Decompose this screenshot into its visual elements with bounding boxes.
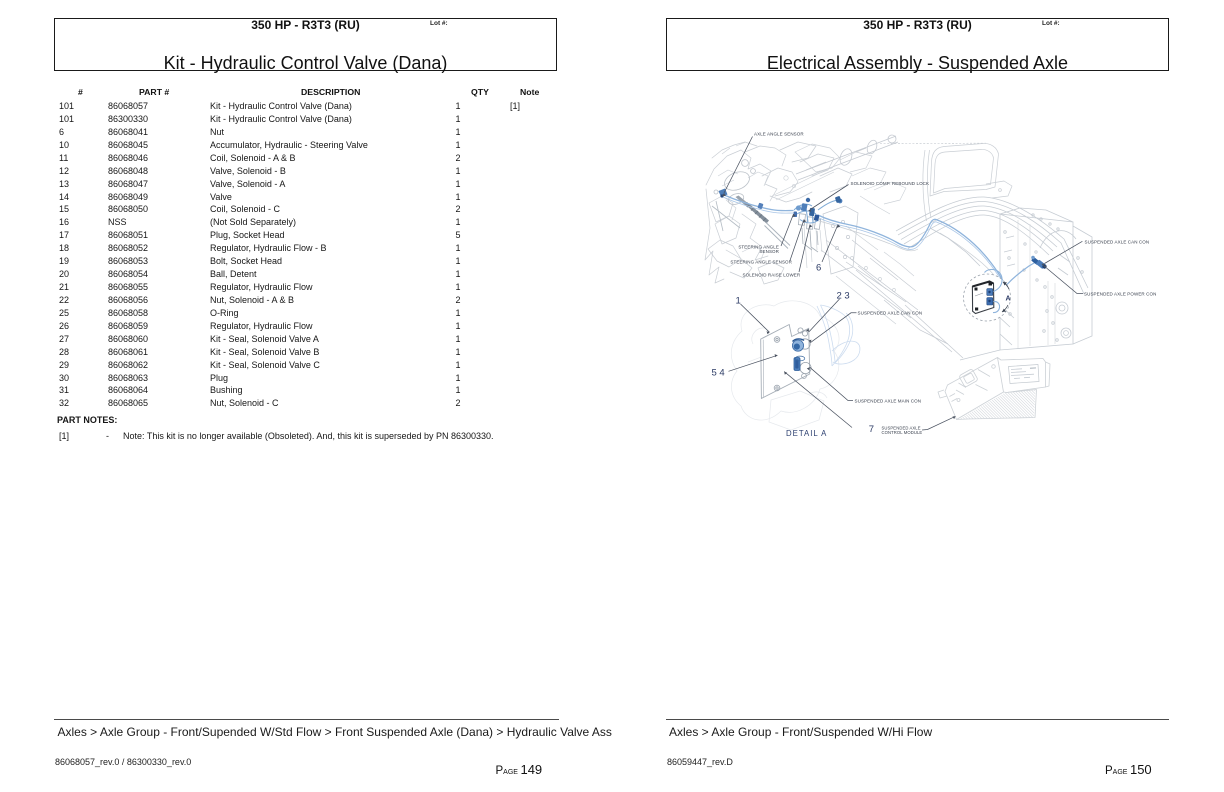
svg-text:SUSPENDED AXLE CAN CON: SUSPENDED AXLE CAN CON: [858, 311, 923, 316]
svg-text:6: 6: [816, 263, 821, 274]
svg-text:SOLENOID COMP. REBOUND LOCK: SOLENOID COMP. REBOUND LOCK: [851, 181, 930, 186]
svg-text:AXLE ANGLE SENSOR: AXLE ANGLE SENSOR: [754, 132, 804, 137]
svg-text:SENSOR: SENSOR: [759, 249, 779, 254]
svg-text:1: 1: [736, 296, 741, 307]
svg-text:5 4: 5 4: [712, 368, 725, 379]
svg-text:7: 7: [869, 424, 874, 435]
svg-text:2 3: 2 3: [837, 291, 850, 302]
svg-text:SUSPENDED AXLE POWER CON: SUSPENDED AXLE POWER CON: [1084, 291, 1156, 296]
svg-text:DETAIL A: DETAIL A: [786, 429, 827, 438]
svg-text:SUSPENDED AXLE MAIN CON: SUSPENDED AXLE MAIN CON: [855, 399, 922, 404]
svg-text:SOLENOID RAISE LOWER: SOLENOID RAISE LOWER: [743, 273, 801, 278]
svg-text:A: A: [1006, 296, 1011, 303]
svg-text:STEERING ANGLE SENSOR: STEERING ANGLE SENSOR: [730, 260, 792, 265]
svg-text:CONTROL MODULE: CONTROL MODULE: [882, 430, 923, 435]
svg-text:SUSPENDED AXLE CAN CON: SUSPENDED AXLE CAN CON: [1085, 239, 1150, 244]
